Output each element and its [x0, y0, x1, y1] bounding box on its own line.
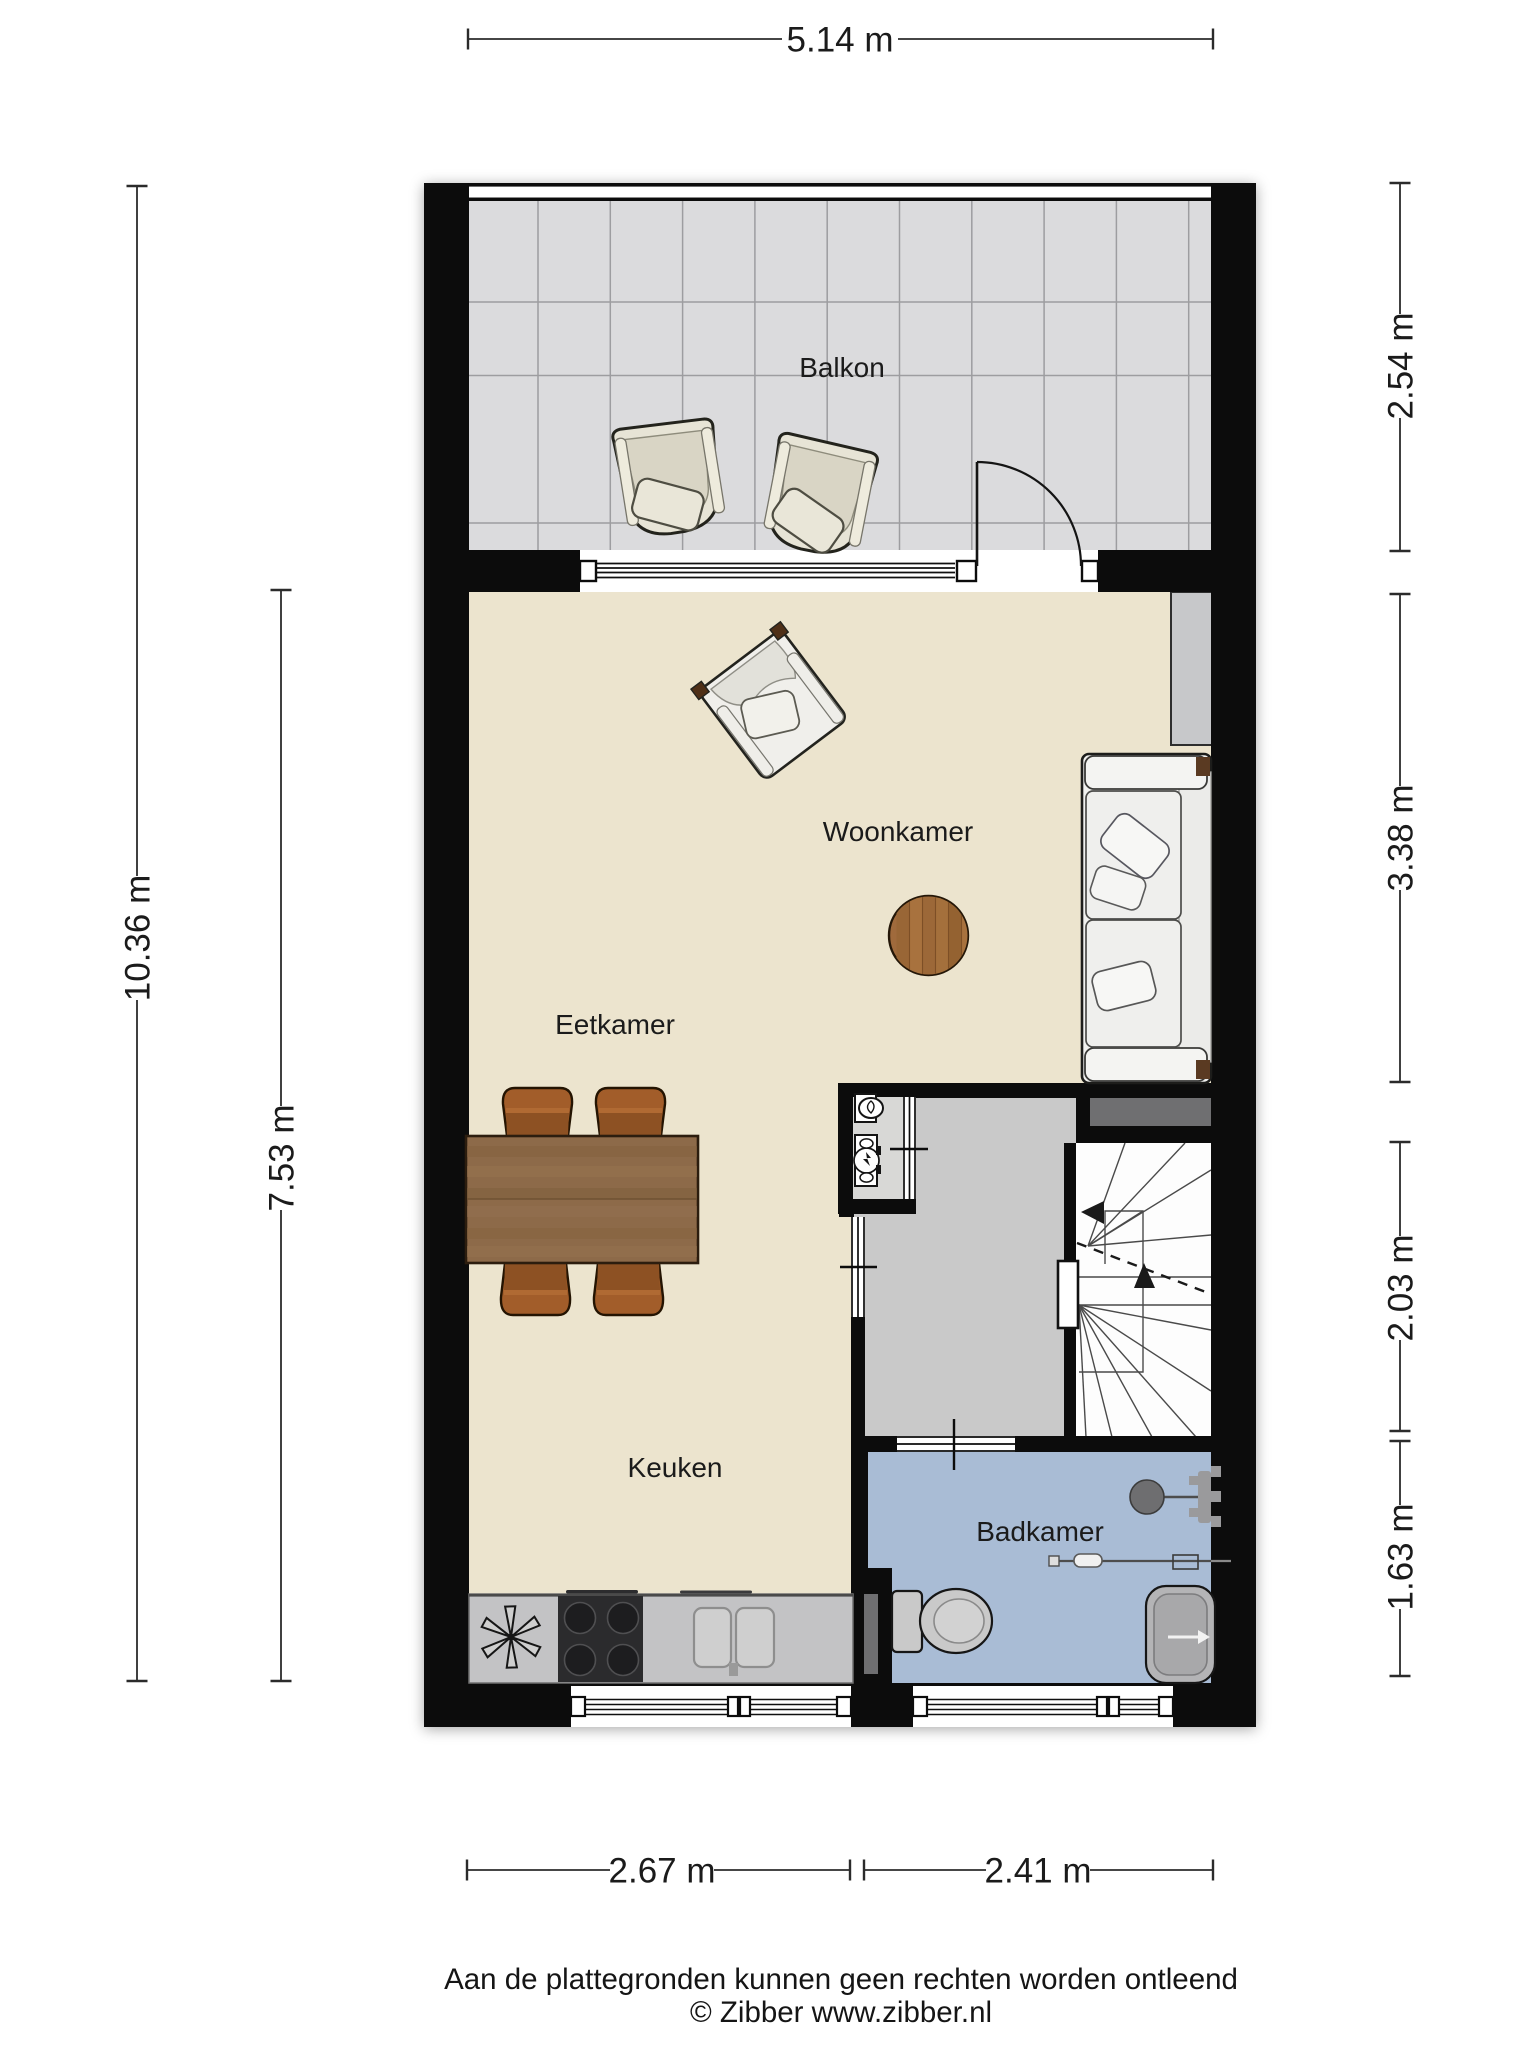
- svg-text:Aan de plattegronden kunnen ge: Aan de plattegronden kunnen geen rechten…: [444, 1963, 1238, 1996]
- svg-text:7.53 m: 7.53 m: [263, 1105, 302, 1212]
- svg-text:1.63 m: 1.63 m: [1382, 1504, 1421, 1611]
- svg-text:Keuken: Keuken: [628, 1452, 723, 1483]
- svg-text:Badkamer: Badkamer: [976, 1516, 1104, 1547]
- svg-text:2.03 m: 2.03 m: [1382, 1235, 1421, 1342]
- svg-text:10.36 m: 10.36 m: [119, 875, 158, 1001]
- svg-text:© Zibber www.zibber.nl: © Zibber www.zibber.nl: [690, 1996, 992, 2029]
- svg-text:2.67 m: 2.67 m: [609, 1852, 716, 1891]
- svg-text:3.38 m: 3.38 m: [1382, 785, 1421, 892]
- svg-text:5.14 m: 5.14 m: [787, 21, 894, 60]
- svg-text:Woonkamer: Woonkamer: [823, 816, 973, 847]
- svg-text:2.54 m: 2.54 m: [1382, 313, 1421, 420]
- svg-text:Balkon: Balkon: [799, 352, 885, 383]
- svg-text:Eetkamer: Eetkamer: [555, 1009, 675, 1040]
- svg-text:2.41 m: 2.41 m: [985, 1852, 1092, 1891]
